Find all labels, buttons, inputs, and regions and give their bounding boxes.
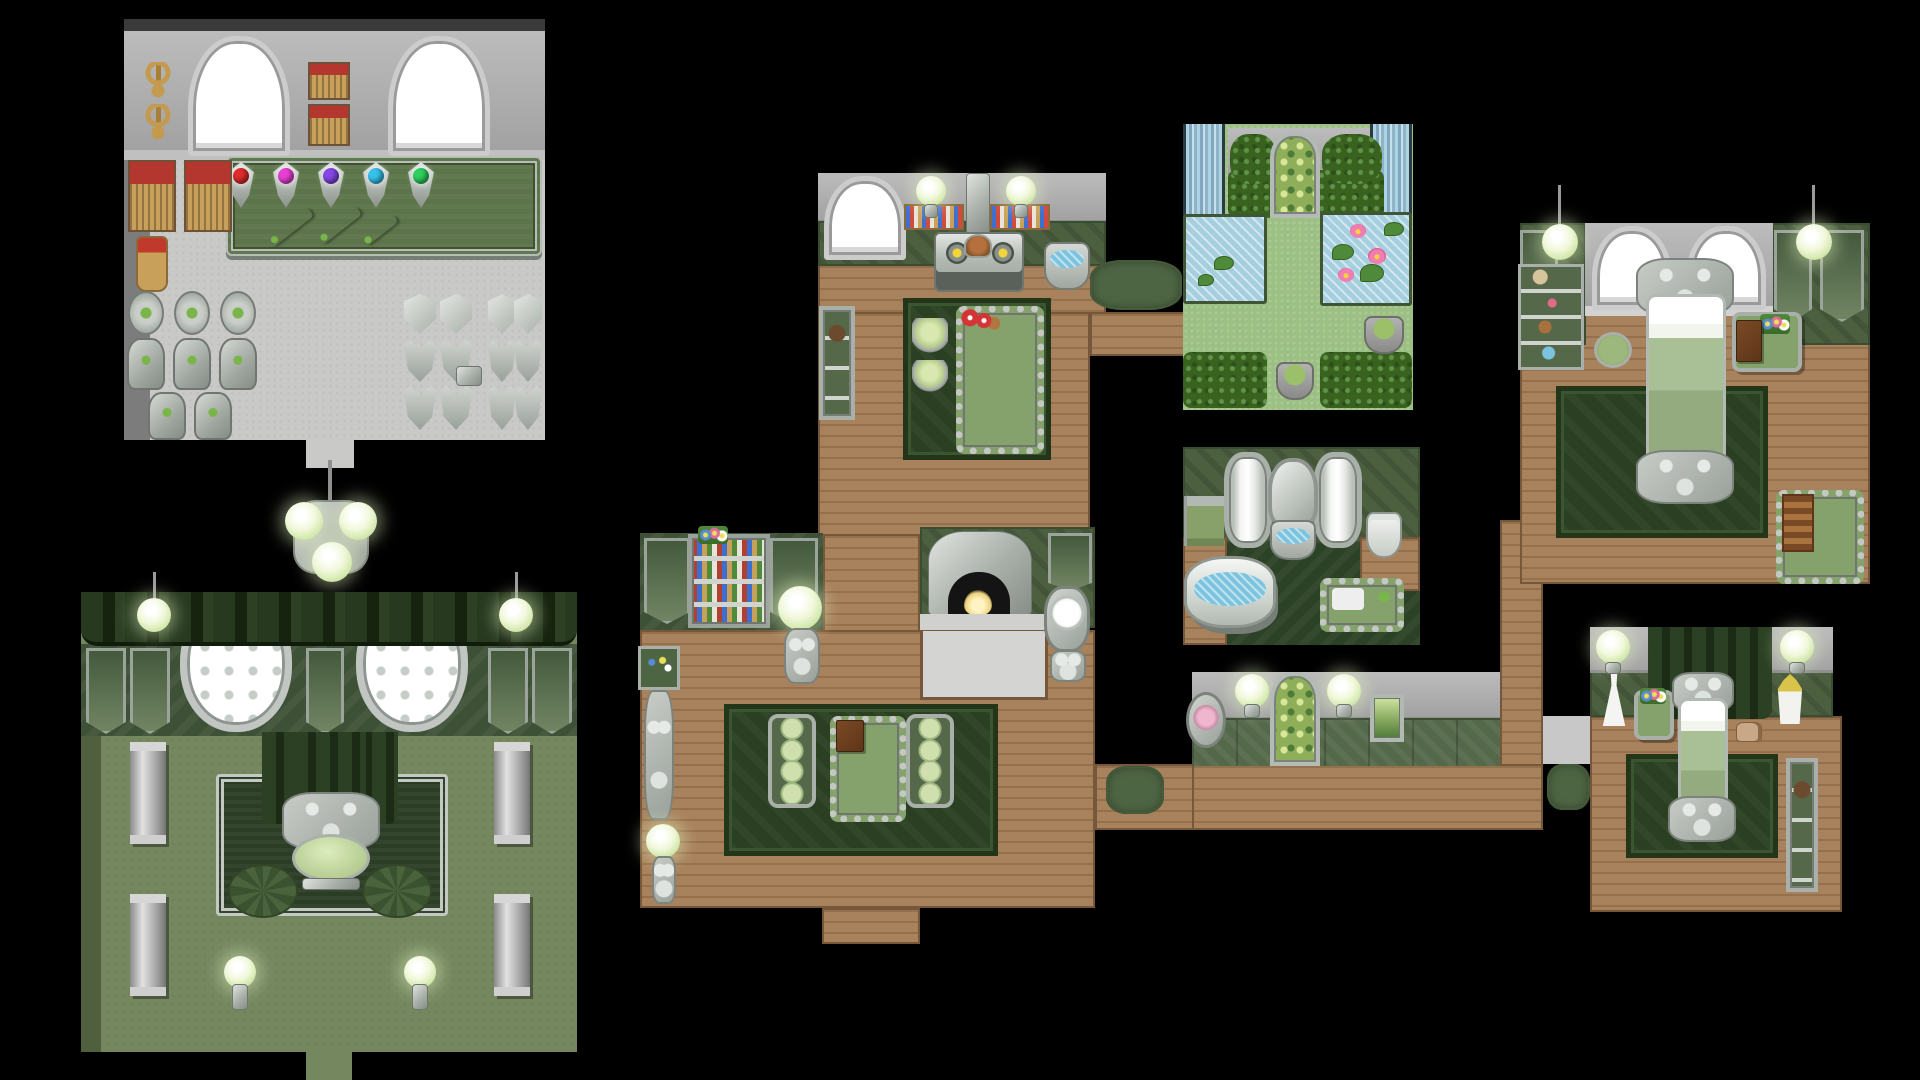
cooking-pot[interactable] [964,234,992,258]
stone-planter-2[interactable] [1276,362,1314,400]
grandfather-clock[interactable] [1044,586,1090,652]
throne-banner-2 [130,648,170,734]
mantel [920,614,1048,630]
wall-mirror-1 [1224,452,1272,548]
master-stool[interactable] [1594,332,1632,368]
throne-lamp-left [137,598,171,632]
small-bed-footboard [1668,796,1736,842]
food-plate-2[interactable] [912,360,948,392]
floor-lamp-left-base [232,984,248,1010]
basin-water [1050,250,1084,268]
small-lamp-2-base [1789,662,1805,674]
throne-room-door[interactable] [306,1050,352,1080]
small-lamp-1-base [1605,662,1621,674]
column-4 [494,894,530,996]
kitchen-lamp-right [1006,176,1036,206]
lily-pad-4 [1214,256,1234,270]
master-bed[interactable] [1646,294,1726,470]
throne-banner-3 [306,648,344,734]
gem-green[interactable] [413,168,429,184]
armory-window-right [388,36,490,156]
hallway-lamp-1-base [1244,704,1260,718]
column-1 [130,742,166,844]
master-lamp-rod-1 [1558,185,1561,229]
lotus-flower-2 [1368,248,1386,264]
armor-stand-5[interactable] [194,392,232,440]
wall-arrow-rack-2[interactable] [308,104,350,146]
armor-stand-1[interactable] [127,338,165,390]
wall-crossbow-1[interactable] [140,62,176,98]
chandelier-orb-left [285,502,323,540]
small-table-flowers [1640,688,1666,704]
column-flowerbox[interactable] [638,646,680,690]
flower-wreath [1186,692,1226,748]
display-table[interactable] [456,366,482,386]
hallway-lamp-2 [1327,674,1361,708]
doormat-gray[interactable] [1543,716,1590,764]
fireplace-banner [1048,533,1092,591]
chandelier-orb-bottom [312,542,352,582]
quiver[interactable] [136,236,168,292]
small-lamp-2 [1780,630,1814,664]
wall-mirror-2 [1314,452,1362,548]
throne-base [302,878,360,890]
armory-window-left [188,36,290,156]
towel-rail[interactable] [1184,496,1224,546]
throne-banner-1 [86,648,126,734]
doormat-pillow [1547,764,1590,810]
kitchen-pillow-tile [1090,260,1182,310]
chandelier-orb-right [339,502,377,540]
lily-pad-3 [1384,222,1404,236]
stove-chimney [966,173,990,235]
throne-banner-5 [532,648,572,734]
gem-cyan[interactable] [368,168,384,184]
pouf-left[interactable] [228,864,298,918]
lily-pad-1 [1332,244,1354,260]
library-lamp-stand [784,628,820,684]
floor-arrow-rack-1[interactable] [128,160,176,232]
landscape-painting[interactable] [1370,694,1404,742]
gem-pink[interactable] [278,168,294,184]
armor-stand-4[interactable] [148,392,186,440]
small-lamp-1 [1596,630,1630,664]
vanity-water [1276,528,1310,544]
throne-room-left-edge [81,724,101,1052]
bench-left[interactable] [768,714,816,808]
gem-purple[interactable] [323,168,339,184]
vanity-mirror[interactable] [1268,458,1318,528]
kitchen-lamp-left [916,176,946,206]
wood-west-corridor [823,534,920,632]
chandelier-rod [328,460,332,502]
kitchen-lamp-left-base [924,204,938,218]
round-shield-1[interactable] [128,291,164,335]
column-2 [130,894,166,996]
hallway-wall-panel [1192,718,1500,766]
bookshelf[interactable] [688,534,770,628]
side-table-cabinet [1736,320,1762,362]
lectern-book[interactable] [836,720,864,752]
bookshelf-flowers [698,526,728,544]
hallway-stained-glass-door[interactable] [1270,672,1320,766]
wall-arrow-rack-1[interactable] [308,62,350,100]
hallway-lamp-2-base [1336,704,1352,718]
pouf-right[interactable] [362,864,432,918]
kitchen-shelf[interactable] [819,306,855,420]
library-banner-left [644,538,690,624]
column-3 [494,742,530,844]
stove-burner-right [992,242,1014,264]
map-stage [0,0,1920,1080]
master-lamp-2 [1796,224,1832,260]
master-bed-footboard [1636,450,1734,504]
hedge-right [1320,352,1412,408]
hallway-lamp-1 [1235,674,1269,708]
stone-planter-1[interactable] [1364,316,1404,354]
throne-lamp-right [499,598,533,632]
round-shield-3[interactable] [220,291,256,335]
waterfall-left [1183,124,1225,218]
armory-top-shadow [124,19,545,31]
fireplace-flame [964,590,992,616]
garden-stained-glass-door[interactable] [1270,132,1320,218]
wood-dining-door[interactable] [822,908,920,944]
round-shield-2[interactable] [174,291,210,335]
hall-corner-lamp-stand [652,856,676,904]
lily-pad-2 [1360,264,1384,282]
kitchen-lamp-right-base [1014,204,1028,218]
column-shelf [644,690,674,820]
small-shelf[interactable] [1786,758,1818,892]
hearth-stone [920,628,1048,700]
connector-pillow-tile [1106,766,1164,814]
side-table-flowers [1760,314,1790,334]
lily-pad-5 [1198,274,1214,286]
clock-stand [1050,650,1086,682]
wood-hallway-floor [1192,764,1543,830]
hedge-left [1183,352,1267,408]
wood-garden-doorway[interactable] [1090,312,1186,356]
lotus-flower-3 [1338,268,1354,282]
kitchen-window [824,176,906,260]
bathtub-water [1194,572,1266,606]
bench-right[interactable] [906,714,954,808]
armor-stand-3[interactable] [219,338,257,390]
floor-lamp-right-base [412,984,428,1010]
gem-red[interactable] [233,168,249,184]
throne-banner-4 [488,648,528,734]
food-plate-1[interactable] [912,318,948,354]
master-lamp-1 [1542,224,1578,260]
armor-stand-2[interactable] [173,338,211,390]
desk-ladder [1782,494,1814,552]
toilet[interactable] [1366,512,1402,558]
throne-seat[interactable] [292,834,370,882]
towels [1332,588,1364,610]
wall-crossbow-2[interactable] [140,104,176,140]
boots[interactable] [1736,722,1762,742]
master-lamp-rod-2 [1812,185,1815,229]
master-shelf[interactable] [1518,264,1584,370]
hall-corner-lamp-orb [646,824,680,858]
garden-tree-right [1322,134,1382,184]
library-lamp-orb [778,586,822,630]
lotus-flower-1 [1350,224,1366,238]
soap [1378,592,1390,602]
floor-arrow-rack-2[interactable] [184,160,232,232]
mushroom-decor[interactable] [960,308,1000,336]
